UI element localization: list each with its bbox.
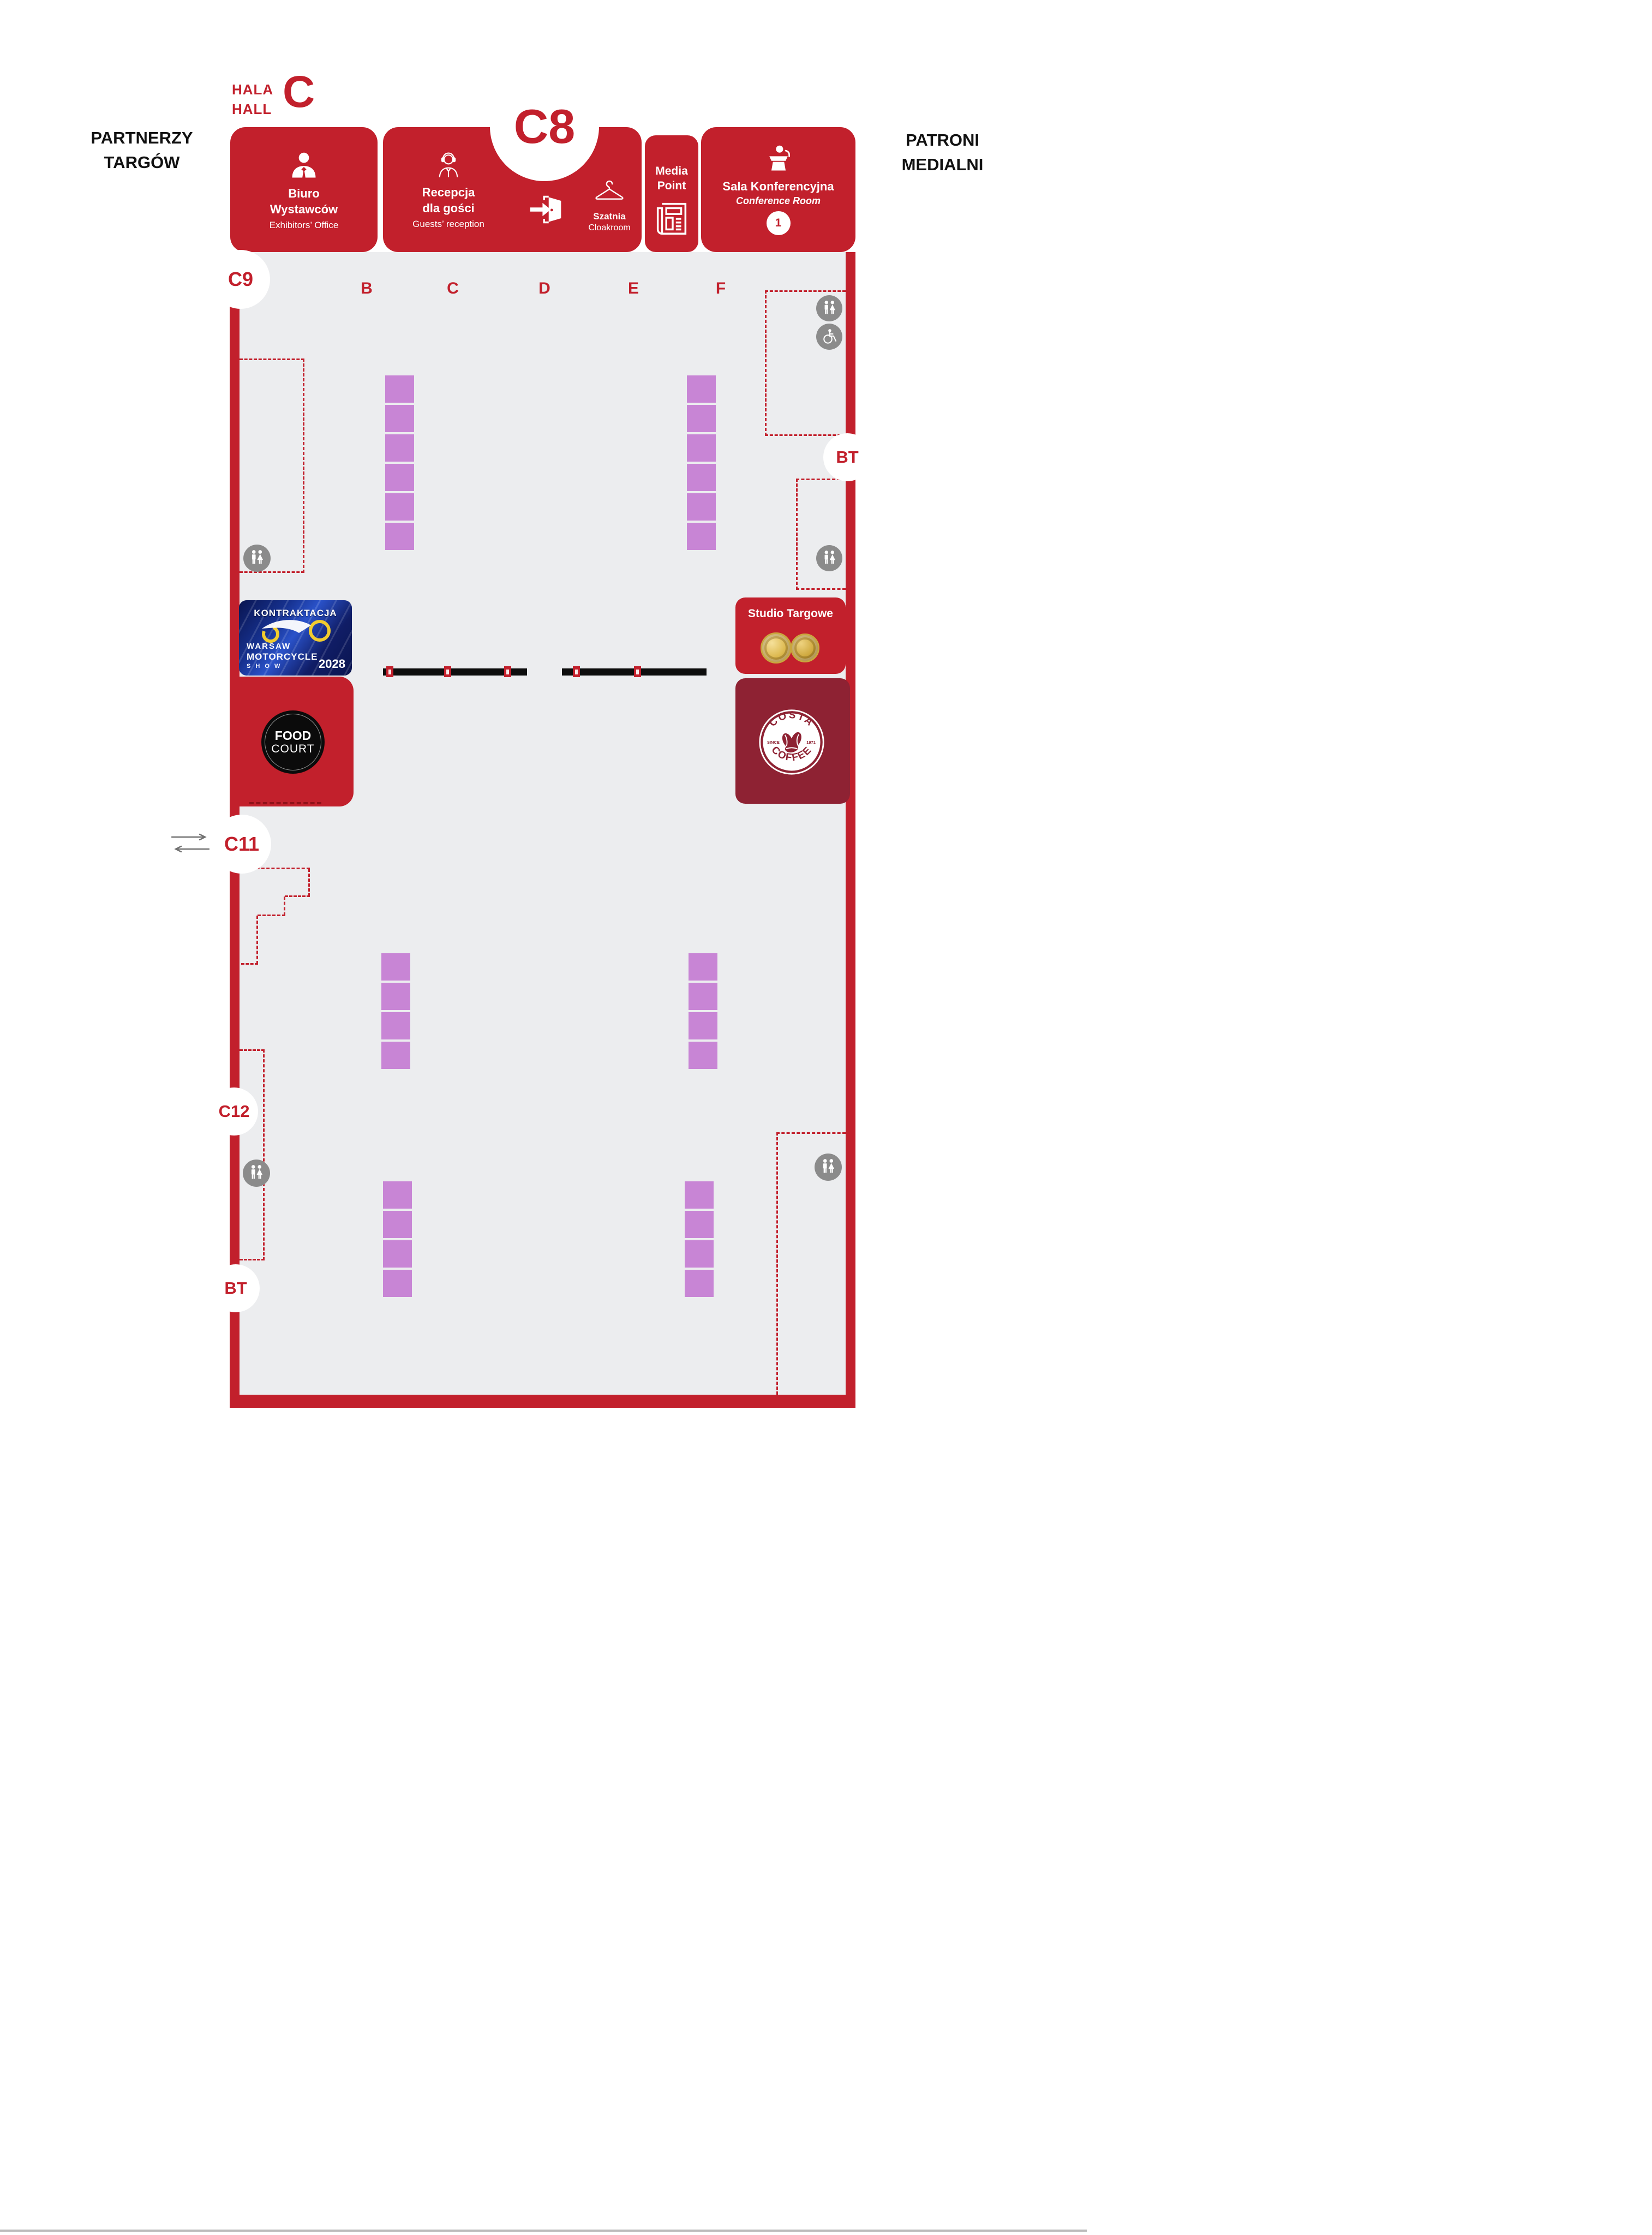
kontraktacja-brand3: S H O W [247, 663, 282, 670]
booth-square [385, 375, 414, 403]
arrow-right-icon [172, 834, 205, 840]
extinguisher-marker-icon [573, 666, 580, 677]
booth-square [381, 1042, 410, 1069]
wc-icon [243, 545, 271, 572]
partition-wall-right [562, 668, 707, 676]
food-court-line2: COURT [271, 743, 314, 756]
arrow-left-icon [176, 846, 209, 852]
booth-square [383, 1181, 412, 1209]
food-court-boundary-dash [249, 802, 321, 804]
studio-targowe-zone: Studio Targowe [735, 597, 846, 674]
booth-square [381, 983, 410, 1010]
booth-square [689, 1012, 717, 1039]
booth-square [687, 493, 716, 521]
booth-square [685, 1181, 714, 1209]
booth-square [687, 405, 716, 432]
booth-square [687, 523, 716, 550]
medal-icon [761, 632, 792, 664]
floorplan-canvas: PARTNERZY TARGÓW PATRONI MEDIALNI HALA H… [0, 0, 1652, 2235]
costa-coffee-zone: COSTA COFFEE SINCE 1971 [735, 678, 850, 804]
costa-year: 1971 [806, 740, 816, 745]
gate-label-c9: C9 [211, 250, 270, 309]
booth-square [689, 1042, 717, 1069]
costa-since: SINCE [767, 740, 780, 745]
wc-icon [243, 1160, 270, 1187]
booth-square [381, 953, 410, 981]
booth-square [687, 464, 716, 491]
booth-square [687, 375, 716, 403]
booth-square [385, 405, 414, 432]
wheelchair-icon [816, 324, 842, 350]
gate-label-c12: C12 [210, 1087, 258, 1136]
booth-square [685, 1240, 714, 1268]
partition-wall-left [383, 668, 527, 676]
booth-square [385, 464, 414, 491]
gate-label-c11: C11 [212, 815, 271, 874]
booth-square [685, 1270, 714, 1297]
page-bottom-rule [0, 2230, 1087, 2232]
booth-square [383, 1240, 412, 1268]
booth-square [687, 434, 716, 462]
wc-icon [816, 545, 842, 571]
entry-exit-arrows [170, 832, 211, 857]
kontraktacja-logo: KONTRAKTACJA WARSAW MOTORCYCLE S H O W 2… [239, 600, 352, 676]
booth-square [685, 1211, 714, 1238]
extinguisher-marker-icon [504, 666, 511, 677]
food-court-logo: FOOD COURT [261, 710, 325, 774]
kontraktacja-year: 2028 [319, 657, 345, 671]
gate-label-bt-right: BT [823, 433, 871, 481]
food-court-line1: FOOD [275, 728, 311, 743]
gate-label-bt-left: BT [212, 1264, 260, 1312]
extinguisher-marker-icon [444, 666, 451, 677]
booth-square [385, 493, 414, 521]
booth-square [381, 1012, 410, 1039]
kontraktacja-brand1: WARSAW [247, 642, 291, 651]
booth-square [383, 1270, 412, 1297]
wc-icon [816, 295, 842, 321]
medal-icon [791, 634, 819, 662]
extinguisher-marker-icon [634, 666, 641, 677]
booth-square [383, 1211, 412, 1238]
booth-square [385, 523, 414, 550]
studio-targowe-title: Studio Targowe [735, 607, 846, 620]
wc-icon [815, 1154, 842, 1181]
kontraktacja-brand2: MOTORCYCLE [247, 652, 318, 662]
coffee-logo-icon: COSTA COFFEE SINCE 1971 [758, 709, 825, 778]
booth-square [385, 434, 414, 462]
booth-square [689, 983, 717, 1010]
extinguisher-marker-icon [386, 666, 393, 677]
booth-square [689, 953, 717, 981]
